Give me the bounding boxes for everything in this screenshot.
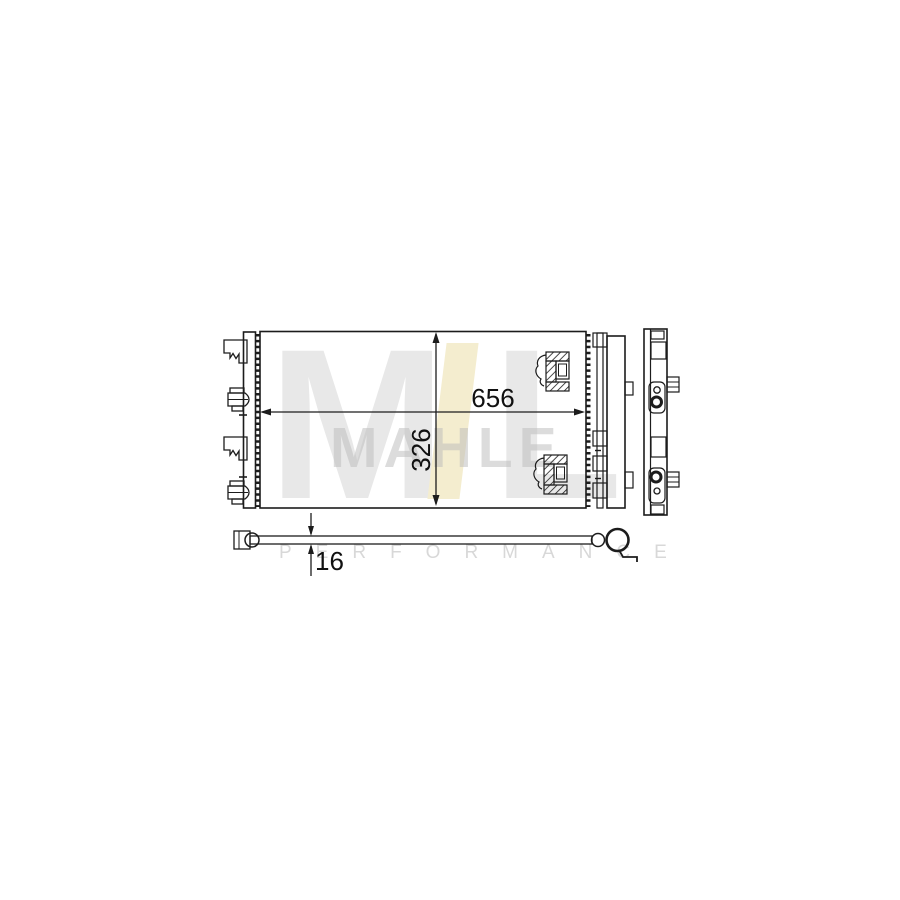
- side-port-bottom: [649, 468, 679, 503]
- dimension-label-height: 326: [408, 407, 436, 493]
- port-block-top: [228, 388, 249, 411]
- port-block-bottom: [228, 481, 249, 504]
- pipe-fitting-bottom: [534, 455, 567, 494]
- dimension-label-depth: 16: [315, 548, 375, 574]
- top-view: [234, 529, 637, 562]
- side-view: [644, 329, 679, 515]
- receiver-drier: [607, 336, 633, 508]
- pipe-fitting-top: [536, 352, 569, 391]
- dimension-label-width: 656: [450, 385, 536, 411]
- drawing-canvas: M L MAHLE PERFORMANCE: [0, 0, 900, 900]
- side-port-top: [649, 377, 679, 413]
- technical-drawing: [0, 0, 900, 900]
